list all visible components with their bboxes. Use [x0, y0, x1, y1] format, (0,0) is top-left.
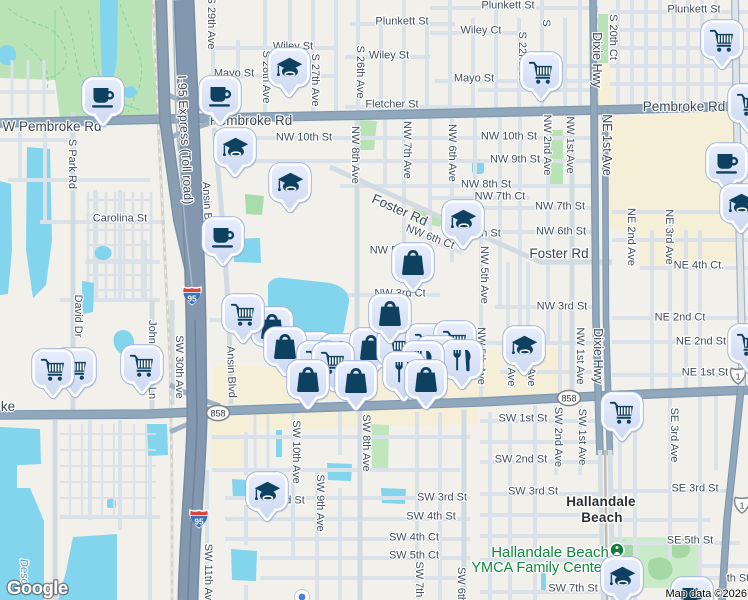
svg-text:John: John — [146, 320, 158, 344]
svg-text:1: 1 — [736, 372, 741, 382]
svg-text:SE 5th St: SE 5th St — [667, 535, 713, 547]
svg-text:NW 3rd St: NW 3rd St — [537, 301, 588, 313]
svg-text:NW 8th St: NW 8th St — [461, 179, 511, 191]
svg-text:SW 3rd St: SW 3rd St — [417, 492, 467, 504]
svg-text:NW 5th Ave: NW 5th Ave — [478, 246, 490, 304]
svg-text:95: 95 — [187, 294, 197, 304]
svg-text:NE 2nd Ave: NE 2nd Ave — [625, 208, 637, 266]
svg-text:SW 7th St: SW 7th St — [548, 583, 598, 595]
svg-text:SW 9th Ave: SW 9th Ave — [314, 474, 326, 531]
svg-text:NW 1st Ave: NW 1st Ave — [564, 116, 576, 173]
svg-text:Wiley St: Wiley St — [369, 50, 409, 62]
svg-text:NE 2nd St: NE 2nd St — [676, 336, 726, 348]
svg-text:NW 6th St: NW 6th St — [536, 226, 586, 238]
svg-text:S 20th Ct: S 20th Ct — [607, 14, 619, 60]
svg-text:SE 3rd Ave: SE 3rd Ave — [668, 408, 680, 463]
svg-text:SW 30th Ave: SW 30th Ave — [173, 335, 185, 398]
svg-text:SW 2nd St: SW 2nd St — [495, 454, 548, 466]
svg-text:SW 8th Ave: SW 8th Ave — [360, 414, 372, 471]
svg-text:SW 6th: SW 6th — [455, 567, 467, 600]
svg-text:Map data ©2026: Map data ©2026 — [666, 588, 748, 600]
svg-text:Hallandale Beach: Hallandale Beach — [491, 544, 609, 561]
svg-text:NE 2nd Ct: NE 2nd Ct — [655, 312, 706, 324]
svg-text:NE 3rd Ave: NE 3rd Ave — [663, 209, 675, 264]
svg-text:NW 10th St: NW 10th St — [276, 132, 332, 144]
svg-text:Dixie Hwy: Dixie Hwy — [591, 328, 605, 384]
svg-text:S 29th Ave: S 29th Ave — [205, 0, 217, 50]
svg-text:W Pembroke Rd: W Pembroke Rd — [2, 119, 101, 134]
svg-text:NW 2nd Ave: NW 2nd Ave — [541, 115, 553, 176]
svg-text:Fletcher St: Fletcher St — [365, 99, 418, 111]
svg-text:S: S — [540, 19, 552, 26]
svg-text:Mayo St: Mayo St — [454, 73, 494, 85]
svg-text:NE 1st St: NE 1st St — [682, 367, 728, 379]
svg-text:NW 7th St: NW 7th St — [535, 201, 585, 213]
svg-text:Google: Google — [7, 577, 68, 598]
svg-text:S 26th Ave: S 26th Ave — [354, 45, 366, 98]
svg-text:NW 7th Ave: NW 7th Ave — [401, 121, 413, 179]
svg-text:SW 1st St: SW 1st St — [499, 413, 548, 425]
svg-text:SW 5th Ct: SW 5th Ct — [389, 550, 439, 562]
svg-text:858: 858 — [210, 408, 225, 418]
svg-text:Plunkett St: Plunkett St — [375, 16, 428, 28]
svg-text:Plunkett St: Plunkett St — [667, 4, 720, 16]
svg-text:95: 95 — [194, 517, 204, 527]
svg-text:NW 1st Ave: NW 1st Ave — [574, 327, 586, 384]
svg-text:Wiley Ct: Wiley Ct — [461, 25, 502, 37]
svg-text:858: 858 — [561, 393, 576, 403]
svg-text:NE 1st Ave: NE 1st Ave — [600, 114, 614, 176]
svg-text:SW 2nd Ave: SW 2nd Ave — [552, 407, 564, 467]
svg-text:Ansin Blvd: Ansin Blvd — [224, 346, 238, 398]
svg-text:SW 3rd St: SW 3rd St — [508, 486, 558, 498]
svg-text:Dixie Hwy: Dixie Hwy — [590, 32, 604, 88]
svg-text:S Park Rd: S Park Rd — [66, 139, 78, 189]
svg-text:SW 4th Ct: SW 4th Ct — [389, 532, 439, 544]
svg-text:Hallandale: Hallandale — [566, 494, 636, 509]
svg-text:YMCA Family Center: YMCA Family Center — [471, 560, 607, 576]
svg-text:Plunkett St: Plunkett St — [481, 0, 534, 12]
svg-text:NW 6th Ave: NW 6th Ave — [446, 124, 458, 182]
svg-text:SW 4th St: SW 4th St — [406, 511, 456, 523]
svg-text:SW 10th Ave: SW 10th Ave — [290, 420, 302, 483]
svg-text:NW 7th Ct: NW 7th Ct — [475, 191, 526, 203]
svg-text:Ave: Ave — [505, 368, 517, 387]
svg-text:David Dr: David Dr — [72, 295, 84, 338]
svg-text:NW 8th Ave: NW 8th Ave — [349, 126, 361, 184]
svg-text:Beach: Beach — [581, 510, 623, 525]
svg-text:SW 1st Ave: SW 1st Ave — [576, 409, 588, 466]
svg-text:th St: th St — [727, 573, 748, 585]
svg-text:SE 3rd St: SE 3rd St — [671, 483, 718, 495]
svg-text:NW 10th St: NW 10th St — [481, 131, 537, 143]
svg-text:Foster Rd: Foster Rd — [529, 246, 588, 261]
svg-text:NW 9th St: NW 9th St — [490, 154, 540, 166]
svg-text:S 27th Ave: S 27th Ave — [309, 53, 321, 106]
svg-text:ke: ke — [1, 399, 15, 414]
svg-text:Carolina St: Carolina St — [93, 213, 147, 225]
svg-text:Pembroke Rd: Pembroke Rd — [643, 99, 726, 114]
svg-text:SW 11th Ave: SW 11th Ave — [202, 544, 214, 600]
svg-text:NE 4th Ct.: NE 4th Ct. — [674, 260, 725, 272]
svg-text:1: 1 — [740, 501, 745, 511]
svg-text:SW 7th Ave: SW 7th Ave — [413, 561, 425, 600]
